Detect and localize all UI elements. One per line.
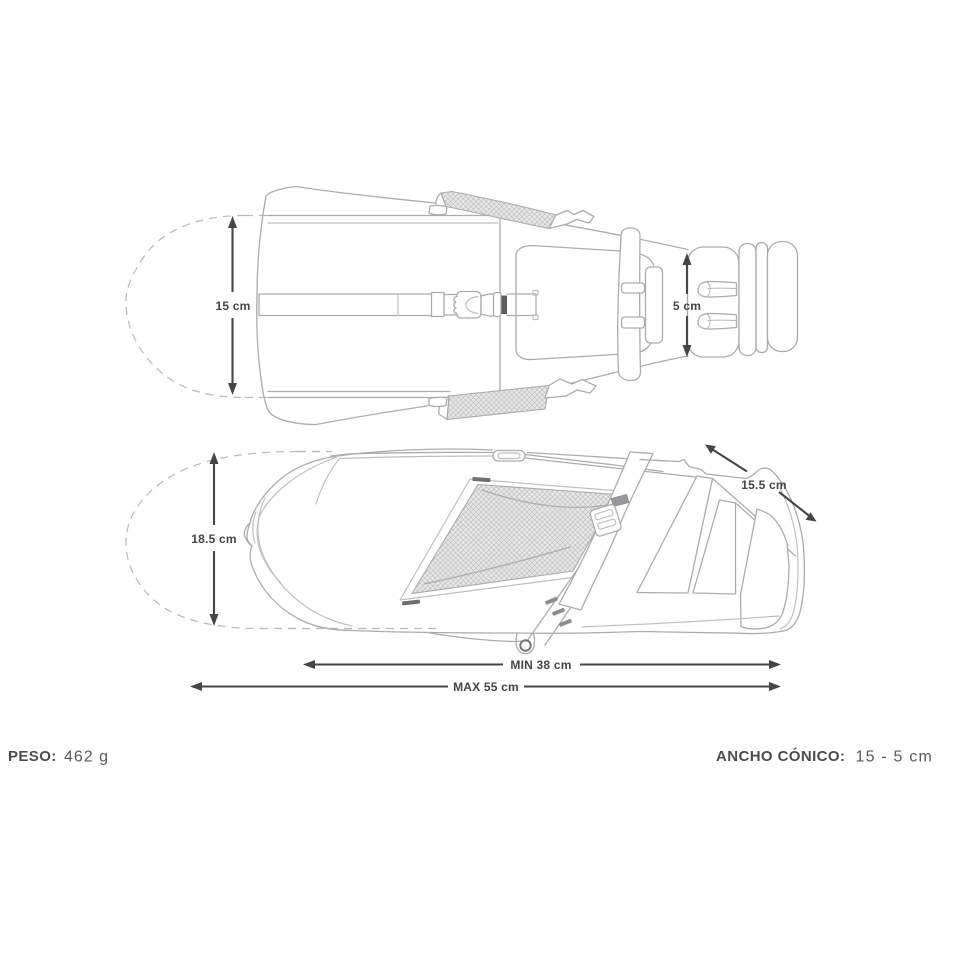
svg-text:5 cm: 5 cm [673, 299, 701, 313]
svg-text:MIN 38 cm: MIN 38 cm [510, 658, 571, 672]
svg-text:18.5 cm: 18.5 cm [191, 532, 236, 546]
svg-text:MAX 55 cm: MAX 55 cm [453, 680, 519, 694]
svg-text:PESO:: PESO: [8, 748, 57, 765]
svg-text:15.5 cm: 15.5 cm [741, 478, 786, 492]
svg-text:ANCHO CÓNICO:: ANCHO CÓNICO: [716, 747, 845, 765]
svg-text:15 - 5 cm: 15 - 5 cm [856, 749, 934, 766]
svg-text:15 cm: 15 cm [215, 299, 250, 313]
svg-text:462 g: 462 g [64, 749, 109, 766]
